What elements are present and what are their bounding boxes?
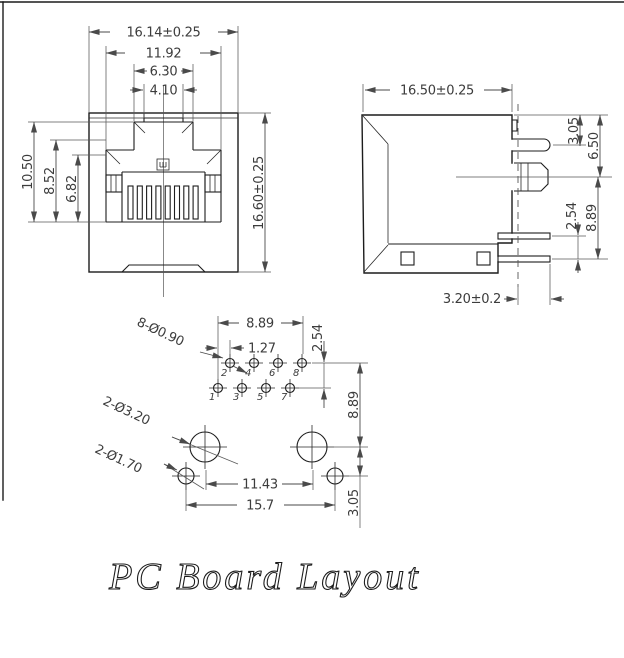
- contact-rib: [156, 186, 161, 219]
- pin-number: 1: [209, 392, 215, 403]
- pin-number: 8: [293, 368, 299, 379]
- pin-number: 2: [221, 368, 227, 379]
- contact-ribs: [128, 186, 198, 219]
- dim-peg-span: 15.7: [246, 499, 274, 514]
- housing-outline: [362, 115, 517, 273]
- dim-front-height-opening: 10.50: [21, 154, 36, 190]
- dim-post-span: 11.43: [242, 478, 278, 493]
- callout-peg-holes: 2-Ø1.70: [92, 442, 144, 477]
- pin-number: 7: [281, 392, 288, 403]
- dim-front-width-opening: 11.92: [146, 47, 182, 62]
- side-view: 16.50±0.25 3.05 6.50 2.54 8.89 3.20±0.2: [362, 84, 612, 308]
- pin-number: 5: [257, 392, 263, 403]
- callout-contact-holes: 8-Ø0.90: [134, 315, 186, 350]
- contact-rib: [175, 186, 180, 219]
- pin-number: 4: [245, 368, 251, 379]
- dim-side-top-to-stop: 6.50: [587, 132, 602, 160]
- board-callouts: 8-Ø0.90 2-Ø3.20 2-Ø1.70: [92, 315, 247, 489]
- dim-side-pin-protrusion: 3.20±0.2: [443, 292, 501, 307]
- dim-row-to-posts: 8.89: [347, 391, 362, 419]
- front-view: 16.14±0.25 11.92 6.30 4.10 10.50 8.52 6.…: [21, 26, 271, 298]
- dim-front-height-cavity: 6.82: [65, 175, 80, 203]
- drawing-title: PC Board Layout: [108, 556, 421, 598]
- contact-rib: [165, 186, 170, 219]
- engineering-drawing: 16.14±0.25 11.92 6.30 4.10 10.50 8.52 6.…: [0, 0, 624, 658]
- dim-front-width-key: 6.30: [150, 65, 178, 80]
- dim-side-stop-to-pin: 8.89: [585, 204, 600, 232]
- dim-post-to-peg: 3.05: [347, 489, 362, 517]
- contact-rib: [137, 186, 142, 219]
- dim-contact-stagger: 1.27: [248, 342, 276, 357]
- board-lock-left: [401, 252, 414, 265]
- side-slot-left: [106, 175, 122, 192]
- contact-rib: [184, 186, 189, 219]
- certification-mark-icon: [157, 159, 169, 170]
- dim-side-depth: 16.50±0.25: [400, 84, 474, 99]
- dim-side-pin-pitch: 2.54: [565, 202, 580, 230]
- board-lock-right: [477, 252, 490, 265]
- dim-front-height-step: 8.52: [43, 167, 58, 195]
- bevel-lines: [363, 116, 388, 272]
- callout-post-holes: 2-Ø3.20: [100, 394, 152, 429]
- side-slot-right: [205, 175, 221, 192]
- contact-holes-bottom-row: 1 3 5 7: [209, 379, 299, 403]
- front-dimensions: 16.14±0.25 11.92 6.30 4.10 10.50 8.52 6.…: [21, 26, 267, 273]
- contact-rib: [147, 186, 152, 219]
- dim-contact-span: 8.89: [246, 317, 274, 332]
- contact-rib: [128, 186, 133, 219]
- contact-rib: [193, 186, 198, 219]
- board-layout: 2 4 6 8 1 3 5 7: [92, 315, 368, 528]
- dim-front-width-latch: 4.10: [150, 84, 178, 99]
- board-dimensions: 8.89 1.27 2.54 8.89 3.05 11.43 15.7: [186, 317, 362, 529]
- pcb-pin-bottom: [498, 256, 550, 262]
- dim-row-pitch: 2.54: [311, 324, 326, 352]
- dim-front-height-outer: 16.60±0.25: [252, 156, 267, 230]
- pin-number: 6: [269, 368, 275, 379]
- pcb-pin-top: [498, 233, 550, 239]
- post-holes: [183, 425, 334, 469]
- side-slot-lines: [111, 175, 215, 192]
- pin-number: 3: [233, 392, 239, 403]
- dim-side-top-to-latch: 3.05: [567, 117, 582, 145]
- top-notch: [512, 120, 517, 131]
- dim-front-width-outer: 16.14±0.25: [126, 26, 200, 41]
- drawing-sheet: 16.14±0.25 11.92 6.30 4.10 10.50 8.52 6.…: [0, 0, 624, 658]
